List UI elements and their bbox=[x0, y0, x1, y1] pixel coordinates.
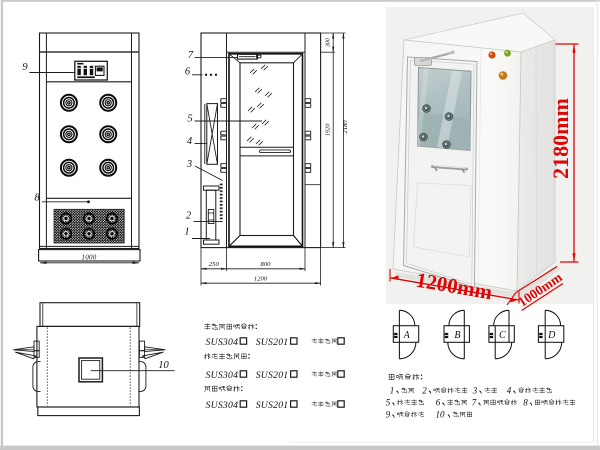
svg-text:SUS304: SUS304 bbox=[206, 400, 239, 411]
svg-text:9: 9 bbox=[386, 410, 391, 420]
svg-text:300: 300 bbox=[326, 38, 332, 48]
svg-text:1920: 1920 bbox=[325, 123, 332, 136]
svg-text:250: 250 bbox=[209, 261, 220, 268]
svg-text:8: 8 bbox=[34, 193, 40, 204]
svg-text:4: 4 bbox=[507, 386, 512, 396]
svg-text:D: D bbox=[547, 330, 556, 341]
svg-text:SUS201: SUS201 bbox=[256, 370, 289, 381]
svg-text:1: 1 bbox=[390, 386, 395, 396]
svg-text:3: 3 bbox=[472, 386, 478, 396]
svg-text:SUS201: SUS201 bbox=[256, 337, 289, 348]
svg-text:C: C bbox=[499, 330, 506, 341]
svg-text:1000: 1000 bbox=[81, 254, 96, 262]
svg-text:2180: 2180 bbox=[342, 120, 349, 134]
svg-text:A: A bbox=[403, 330, 411, 341]
svg-text:1200: 1200 bbox=[254, 275, 268, 282]
svg-text:10: 10 bbox=[436, 410, 446, 420]
svg-text:2: 2 bbox=[422, 386, 427, 396]
svg-text:9: 9 bbox=[22, 62, 28, 73]
svg-text:3: 3 bbox=[186, 159, 192, 170]
svg-text:2180mm: 2180mm bbox=[548, 98, 573, 179]
svg-text:10: 10 bbox=[158, 360, 169, 371]
svg-text:6: 6 bbox=[185, 66, 191, 77]
svg-text:2: 2 bbox=[186, 211, 192, 222]
svg-text:B: B bbox=[454, 330, 460, 341]
svg-text:5: 5 bbox=[386, 398, 391, 408]
svg-text:4: 4 bbox=[187, 136, 193, 147]
svg-text:SUS201: SUS201 bbox=[256, 400, 289, 411]
svg-text:5: 5 bbox=[187, 113, 192, 124]
svg-text:6: 6 bbox=[436, 398, 441, 408]
svg-text:1: 1 bbox=[184, 227, 189, 238]
svg-text:SUS304: SUS304 bbox=[206, 337, 239, 348]
svg-text:SUS304: SUS304 bbox=[206, 370, 239, 381]
svg-text:800: 800 bbox=[261, 261, 272, 268]
svg-text:7: 7 bbox=[188, 50, 194, 61]
svg-text:8: 8 bbox=[523, 398, 528, 408]
svg-text:7: 7 bbox=[472, 398, 477, 408]
